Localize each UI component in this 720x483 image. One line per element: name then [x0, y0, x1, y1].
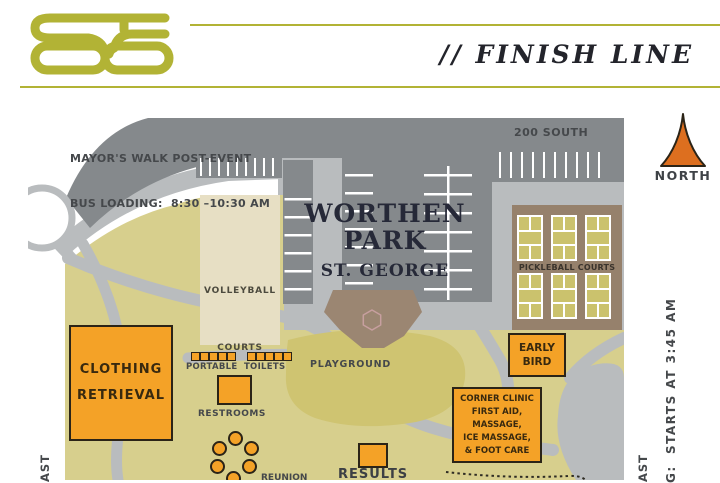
park-title: WORTHEN PARK ST. GEORGE	[295, 200, 475, 281]
street-label-200-south: 200 SOUTH	[514, 126, 588, 139]
corner-clinic-box: CORNER CLINIC FIRST AID, MASSAGE, ICE MA…	[452, 387, 542, 463]
north-label: NORTH	[652, 168, 714, 183]
toilet-marker	[256, 352, 265, 361]
street-label-right: AST	[636, 454, 650, 482]
toilet-marker	[191, 352, 200, 361]
header-rule-top	[190, 24, 720, 26]
restrooms-marker	[217, 375, 252, 405]
playground-label: PLAYGROUND	[310, 359, 391, 370]
volleyball-courts-label: VOLLEYBALL COURTS	[200, 244, 280, 396]
bus-note-line2: BUS LOADING: 8:30 –10:30 AM	[70, 196, 270, 211]
park-title-line3: ST. GEORGE	[295, 261, 475, 281]
toilet-marker	[247, 352, 256, 361]
results-label: RESULTS	[338, 467, 408, 480]
toilet-marker	[218, 352, 227, 361]
reunion-marker	[228, 431, 243, 446]
street-label-left: AST	[38, 454, 52, 482]
toilet-marker	[209, 352, 218, 361]
toilet-marker	[200, 352, 209, 361]
reunion-marker	[244, 441, 259, 456]
park-title-line1: WORTHEN	[295, 200, 475, 227]
start-time-note: G: STARTS AT 3:45 AM	[664, 298, 678, 483]
north-arrow-icon	[660, 112, 706, 168]
header-rule-bottom	[20, 86, 720, 88]
reunion-marker	[210, 459, 225, 474]
park-map: MAYOR'S WALK POST-EVENT BUS LOADING: 8:3…	[28, 116, 624, 480]
portable-toilets-label: PORTABLE TOILETS	[186, 362, 285, 372]
clothing-retrieval-box: CLOTHING RETRIEVAL	[69, 325, 173, 441]
toilet-marker	[274, 352, 283, 361]
toilet-marker	[265, 352, 274, 361]
reunion-marker	[226, 471, 241, 480]
reunion-area-label: REUNION AREA	[261, 443, 307, 480]
finish-line-title: // FINISH LINE	[439, 40, 694, 69]
reunion-marker	[242, 459, 257, 474]
stg-logo-icon	[28, 8, 176, 76]
park-title-line2: PARK	[295, 227, 475, 254]
finish-line-map-page: { "header": { "finish_line_label": "// F…	[0, 0, 720, 480]
early-bird-box: EARLY BIRD	[508, 333, 566, 377]
toilet-marker	[227, 352, 236, 361]
restrooms-label: RESTROOMS	[198, 409, 266, 419]
toilet-marker	[283, 352, 292, 361]
bus-note-line1: MAYOR'S WALK POST-EVENT	[70, 151, 270, 166]
reunion-marker	[212, 441, 227, 456]
bus-loading-note: MAYOR'S WALK POST-EVENT BUS LOADING: 8:3…	[70, 121, 270, 241]
results-marker	[358, 443, 388, 468]
pickleball-courts-label: PICKLEBALL COURTS	[510, 263, 624, 272]
